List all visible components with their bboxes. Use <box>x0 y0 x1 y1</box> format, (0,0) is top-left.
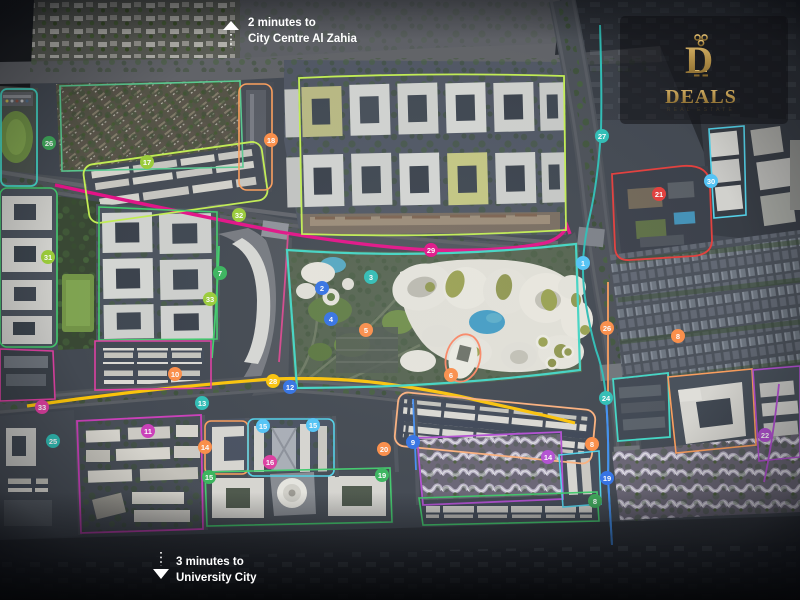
svg-text:2 minutes to: 2 minutes to <box>248 17 316 29</box>
svg-text:DEALS: DEALS <box>665 86 737 108</box>
svg-text:3 minutes to: 3 minutes to <box>176 556 244 568</box>
svg-text:REAL ESTATE: REAL ESTATE <box>667 107 735 113</box>
svg-text:D: D <box>685 39 713 82</box>
svg-text:University City: University City <box>176 572 257 584</box>
svg-text:City Centre Al Zahia: City Centre Al Zahia <box>248 33 357 45</box>
